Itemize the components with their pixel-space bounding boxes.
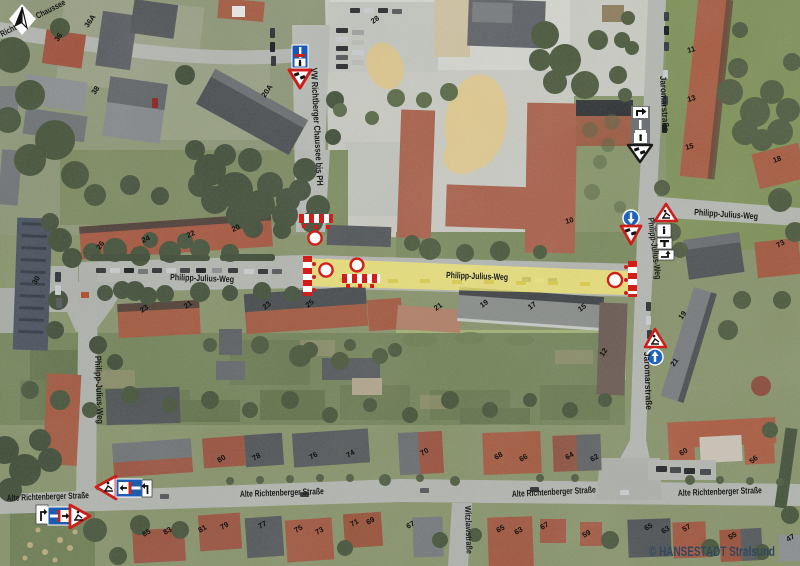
- svg-text:Jaromarstraße: Jaromarstraße: [642, 352, 654, 410]
- svg-text:© HANSESTADT Stralsund: © HANSESTADT Stralsund: [649, 544, 775, 559]
- svg-text:Witzlawstraße: Witzlawstraße: [463, 506, 475, 555]
